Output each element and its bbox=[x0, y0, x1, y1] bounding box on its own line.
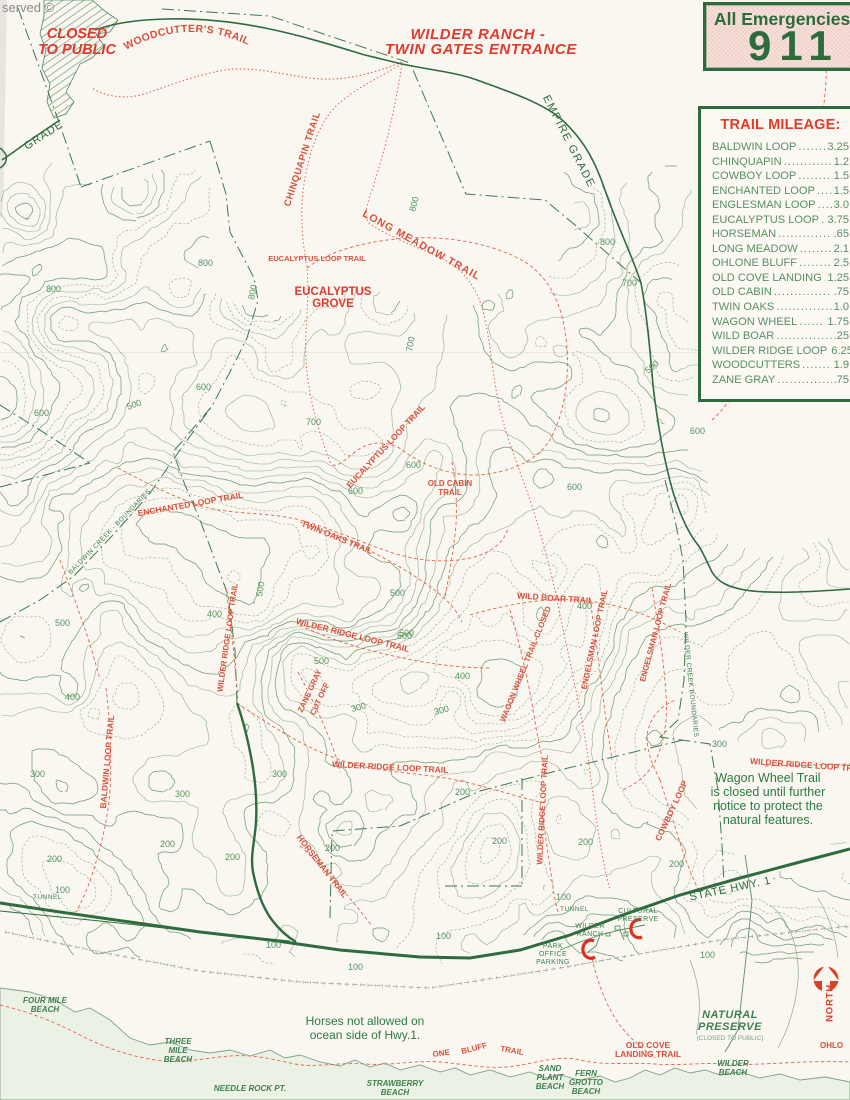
svg-text:GROVE: GROVE bbox=[312, 298, 354, 310]
svg-text:BEACH: BEACH bbox=[719, 1068, 748, 1077]
svg-text:(CLOSED TO PUBLIC): (CLOSED TO PUBLIC) bbox=[697, 1035, 764, 1042]
svg-text:Horses not allowed on: Horses not allowed on bbox=[306, 1014, 425, 1028]
svg-text:RANCH: RANCH bbox=[577, 931, 604, 938]
svg-text:500: 500 bbox=[314, 656, 329, 666]
svg-text:OHLO: OHLO bbox=[820, 1041, 843, 1050]
svg-text:100: 100 bbox=[348, 962, 363, 972]
svg-text:600: 600 bbox=[348, 486, 363, 496]
svg-text:STRAWBERRY: STRAWBERRY bbox=[367, 1079, 424, 1088]
svg-text:200: 200 bbox=[492, 836, 507, 846]
svg-text:500: 500 bbox=[55, 618, 70, 628]
svg-text:200: 200 bbox=[47, 854, 62, 864]
svg-text:SAND: SAND bbox=[539, 1064, 562, 1073]
svg-text:BEACH: BEACH bbox=[31, 1005, 60, 1014]
svg-text:100: 100 bbox=[556, 892, 571, 902]
svg-text:BEACH: BEACH bbox=[164, 1055, 193, 1064]
svg-text:200: 200 bbox=[225, 852, 240, 862]
svg-text:THREE: THREE bbox=[164, 1037, 192, 1046]
svg-text:200: 200 bbox=[669, 859, 684, 869]
svg-text:CLOSED: CLOSED bbox=[47, 26, 108, 42]
svg-text:WILDER: WILDER bbox=[717, 1059, 749, 1068]
svg-text:BEACH: BEACH bbox=[381, 1088, 410, 1097]
svg-text:natural features.: natural features. bbox=[723, 813, 813, 827]
svg-text:400: 400 bbox=[577, 601, 592, 611]
svg-text:300: 300 bbox=[30, 769, 45, 779]
svg-text:MILE: MILE bbox=[168, 1046, 188, 1055]
svg-text:300: 300 bbox=[175, 789, 190, 799]
svg-text:EUCALYPTUS: EUCALYPTUS bbox=[295, 286, 372, 298]
svg-text:TO PUBLIC: TO PUBLIC bbox=[38, 42, 116, 58]
svg-text:700: 700 bbox=[306, 417, 321, 427]
svg-text:PRESERVE: PRESERVE bbox=[617, 916, 658, 923]
svg-text:PLANT: PLANT bbox=[537, 1073, 565, 1082]
svg-text:200: 200 bbox=[325, 843, 340, 853]
svg-text:TUNNEL: TUNNEL bbox=[560, 906, 589, 913]
svg-text:ocean side of Hwy.1.: ocean side of Hwy.1. bbox=[310, 1028, 421, 1042]
svg-text:is closed until further: is closed until further bbox=[711, 785, 826, 799]
svg-text:300: 300 bbox=[712, 739, 727, 749]
svg-text:100: 100 bbox=[266, 940, 281, 950]
svg-text:FOUR MILE: FOUR MILE bbox=[23, 996, 68, 1005]
svg-text:200: 200 bbox=[578, 837, 593, 847]
svg-text:GROTTO: GROTTO bbox=[569, 1078, 604, 1087]
svg-text:500: 500 bbox=[390, 588, 405, 598]
svg-text:800: 800 bbox=[198, 258, 213, 268]
svg-text:300: 300 bbox=[272, 769, 287, 779]
svg-text:CULTURAL: CULTURAL bbox=[618, 908, 658, 915]
svg-text:100: 100 bbox=[700, 950, 715, 960]
svg-text:BEACH: BEACH bbox=[572, 1087, 601, 1096]
svg-text:OFFICE: OFFICE bbox=[539, 951, 567, 958]
svg-text:TUNNEL: TUNNEL bbox=[33, 894, 62, 901]
svg-text:400: 400 bbox=[455, 671, 470, 681]
svg-text:OLD CABIN: OLD CABIN bbox=[428, 479, 473, 488]
svg-text:LANDING TRAIL: LANDING TRAIL bbox=[615, 1049, 681, 1059]
svg-text:400: 400 bbox=[207, 609, 222, 619]
svg-text:600: 600 bbox=[406, 460, 421, 470]
svg-text:NORTH: NORTH bbox=[825, 984, 836, 1022]
svg-text:PARKING: PARKING bbox=[536, 959, 570, 966]
svg-text:TRAIL: TRAIL bbox=[438, 488, 462, 497]
svg-text:500: 500 bbox=[397, 631, 412, 641]
svg-text:700: 700 bbox=[622, 278, 637, 288]
svg-text:600: 600 bbox=[690, 426, 705, 436]
svg-text:TWIN GATES ENTRANCE: TWIN GATES ENTRANCE bbox=[385, 41, 577, 58]
svg-text:notice to protect the: notice to protect the bbox=[713, 799, 823, 813]
svg-text:800: 800 bbox=[600, 237, 615, 247]
svg-text:400: 400 bbox=[65, 692, 80, 702]
svg-text:WILDER: WILDER bbox=[575, 923, 605, 930]
svg-text:Wagon Wheel Trail: Wagon Wheel Trail bbox=[715, 771, 820, 785]
svg-text:served ©: served © bbox=[2, 0, 55, 15]
svg-text:PARK: PARK bbox=[543, 943, 563, 950]
svg-text:100: 100 bbox=[55, 885, 70, 895]
svg-text:EUCALYPTUS LOOP TRAIL: EUCALYPTUS LOOP TRAIL bbox=[268, 254, 366, 263]
svg-text:NEEDLE ROCK PT.: NEEDLE ROCK PT. bbox=[214, 1084, 286, 1093]
svg-text:600: 600 bbox=[567, 482, 582, 492]
svg-text:600: 600 bbox=[196, 382, 211, 392]
svg-text:100: 100 bbox=[436, 931, 451, 941]
svg-text:FERN: FERN bbox=[575, 1069, 597, 1078]
svg-text:PRESERVE: PRESERVE bbox=[698, 1021, 762, 1033]
svg-text:BEACH: BEACH bbox=[536, 1082, 565, 1091]
svg-text:800: 800 bbox=[46, 284, 61, 294]
svg-text:600: 600 bbox=[34, 408, 49, 418]
svg-text:NATURAL: NATURAL bbox=[702, 1009, 758, 1021]
svg-text:200: 200 bbox=[160, 839, 175, 849]
svg-text:200: 200 bbox=[455, 787, 470, 797]
